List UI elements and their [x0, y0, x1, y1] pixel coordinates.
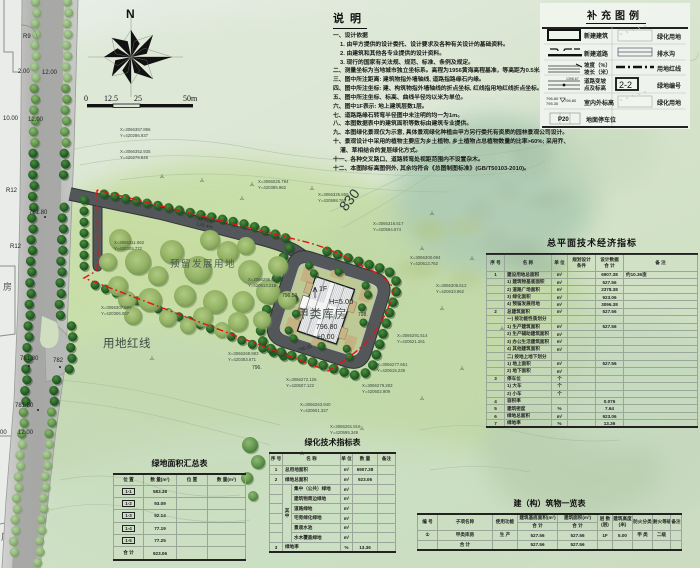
svg-text:Y=420613.762: Y=420613.762 — [410, 261, 439, 266]
svg-text:房: 房 — [3, 281, 12, 292]
svg-text:±0.00: ±0.00 — [317, 334, 335, 341]
svg-text:甲类库房: 甲类库房 — [297, 306, 347, 321]
svg-text:781.80: 781.80 — [29, 210, 48, 216]
svg-text:X=3066272.126: X=3066272.126 — [286, 377, 317, 382]
svg-text:795.30: 795.30 — [546, 101, 559, 106]
svg-text:0: 0 — [84, 94, 88, 103]
svg-text:X=3066306.612: X=3066306.612 — [436, 283, 467, 288]
svg-text:781.80: 781.80 — [15, 403, 34, 409]
svg-text:2-2: 2-2 — [619, 80, 632, 90]
svg-text:X=3066261.816: X=3066261.816 — [330, 424, 361, 429]
svg-text:00: 00 — [0, 430, 7, 436]
svg-text:796.80: 796.80 — [316, 324, 338, 331]
svg-text:用地红线: 用地红线 — [103, 336, 151, 350]
svg-text:N: N — [126, 7, 135, 21]
svg-text:Y=420513.218: Y=420513.218 — [248, 283, 277, 288]
svg-text:Y=420602.909: Y=420602.909 — [362, 389, 391, 394]
svg-text:X=3066291.514: X=3066291.514 — [397, 333, 428, 338]
svg-text:X=3066025.794: X=3066025.794 — [258, 179, 289, 184]
svg-text:Y=420306.007: Y=420306.007 — [101, 311, 130, 316]
svg-text:X=3066279.283: X=3066279.283 — [362, 383, 393, 388]
svg-text:X=3066277.661: X=3066277.661 — [377, 362, 408, 367]
svg-text:796.50: 796.50 — [282, 293, 298, 299]
svg-text:X=3066352.935: X=3066352.935 — [120, 149, 151, 154]
svg-text:X=3066311.862: X=3066311.862 — [114, 240, 145, 245]
svg-text:R12: R12 — [10, 244, 22, 250]
svg-text:12.00: 12.00 — [28, 117, 44, 123]
svg-text:Y=420621.261: Y=420621.261 — [397, 339, 426, 344]
svg-text:781.80: 781.80 — [20, 356, 39, 362]
svg-text:P20: P20 — [558, 117, 569, 123]
svg-text:10.00: 10.00 — [3, 116, 19, 122]
svg-text:Y=420594.674: Y=420594.674 — [373, 227, 402, 232]
svg-text:798.: 798. — [358, 312, 368, 318]
svg-text:R12: R12 — [6, 188, 18, 194]
svg-text:25: 25 — [134, 94, 142, 103]
svg-text:12.00: 12.00 — [42, 70, 58, 76]
svg-text:Y=420601.327: Y=420601.327 — [300, 408, 329, 413]
svg-text:Y=420385.962: Y=420385.962 — [258, 185, 287, 190]
svg-text:796.80: 796.80 — [564, 98, 577, 103]
svg-text:Y=420633.962: Y=420633.962 — [436, 289, 465, 294]
svg-text:Y=420286.937: Y=420286.937 — [120, 133, 149, 138]
svg-text:782: 782 — [53, 358, 64, 364]
svg-text:R9: R9 — [23, 34, 31, 40]
svg-text:796.: 796. — [252, 365, 262, 371]
svg-text:X=3066307.599: X=3066307.599 — [101, 305, 132, 310]
svg-text:1F: 1F — [319, 286, 327, 293]
svg-text:X=3066357.896: X=3066357.896 — [120, 127, 151, 132]
svg-text:Y=420279.846: Y=420279.846 — [120, 155, 149, 160]
svg-text:X=3066268.983: X=3066268.983 — [228, 351, 259, 356]
svg-text:Y=420383.671: Y=420383.671 — [228, 357, 257, 362]
svg-text:12.5: 12.5 — [104, 94, 118, 103]
svg-text:X=3066296.021: X=3066296.021 — [248, 277, 279, 282]
svg-text:H=5.00: H=5.00 — [329, 297, 353, 306]
svg-text:Y=420595.349: Y=420595.349 — [330, 430, 359, 435]
svg-text:预留发展用地: 预留发展用地 — [170, 258, 236, 270]
svg-text:Y=420507.122: Y=420507.122 — [286, 383, 315, 388]
svg-text:2.00: 2.00 — [18, 69, 30, 75]
svg-text:X=3066300.694: X=3066300.694 — [410, 255, 441, 260]
svg-text:Y=420615.239: Y=420615.239 — [377, 368, 406, 373]
svg-text:X=3066263.940: X=3066263.940 — [300, 402, 331, 407]
svg-text:1398.67: 1398.67 — [566, 77, 579, 81]
svg-text:Y=420305.772: Y=420305.772 — [114, 246, 143, 251]
svg-text:50m: 50m — [183, 94, 198, 103]
svg-text:X=3066316.617: X=3066316.617 — [373, 221, 404, 226]
svg-text:12.00: 12.00 — [18, 430, 34, 436]
